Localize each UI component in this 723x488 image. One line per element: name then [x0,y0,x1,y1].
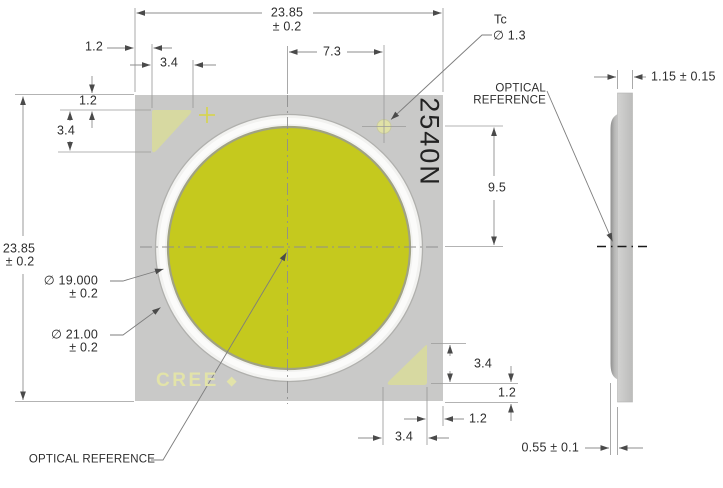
dim-tc-offset-from-center: 7.3 [323,46,341,59]
dim-fiducial-width-top: 3.4 [160,57,178,70]
dim-fiducial-inset-bottom-x: 1.2 [469,413,487,426]
optical-reference-side-line2: REFERENCE [473,95,546,108]
optical-reference-label-bottom: OPTICAL REFERENCE [29,454,155,467]
led-package-mechanical-drawing: 2540N CREE ◆ 23.85 ± 0.2 1.2 3.4 7.3 Tc … [0,0,723,488]
dim-emitting-diameter-tolerance: ± 0.2 [69,288,98,301]
dim-overall-width-value: 23.85 [271,7,303,20]
dim-fiducial-width-bottom: 3.4 [395,431,413,444]
dim-tc-to-center-vertical: 9.5 [488,182,506,195]
part-marking: 2540N [414,97,445,187]
tc-label: Tc [494,14,507,27]
dim-fiducial-inset-top-x: 1.2 [85,41,103,54]
side-view-substrate [618,93,633,402]
dim-overall-width-tolerance: ± 0.2 [273,21,302,34]
drawing-geometry [0,0,723,488]
brand-logo-diamond-icon: ◆ [227,373,237,388]
brand-logo: CREE ◆ [156,370,237,392]
dim-lens-height: 0.55 ± 0.1 [521,442,579,455]
dim-total-thickness: 1.15 ± 0.15 [651,71,716,84]
dim-overall-height-tolerance: ± 0.2 [6,256,35,269]
brand-logo-text: CREE [156,370,219,391]
optical-reference-side-leader [547,91,613,242]
dim-dam-diameter-tolerance: ± 0.2 [69,342,98,355]
tc-diameter-label: ∅ 1.3 [493,30,526,43]
dim-fiducial-inset-top-y: 1.2 [79,95,97,108]
dim-fiducial-height-left: 3.4 [57,125,75,138]
dim-fiducial-inset-bottom-y: 1.2 [498,387,516,400]
light-emitting-surface [168,127,410,369]
dim-fiducial-height-right: 3.4 [474,358,492,371]
